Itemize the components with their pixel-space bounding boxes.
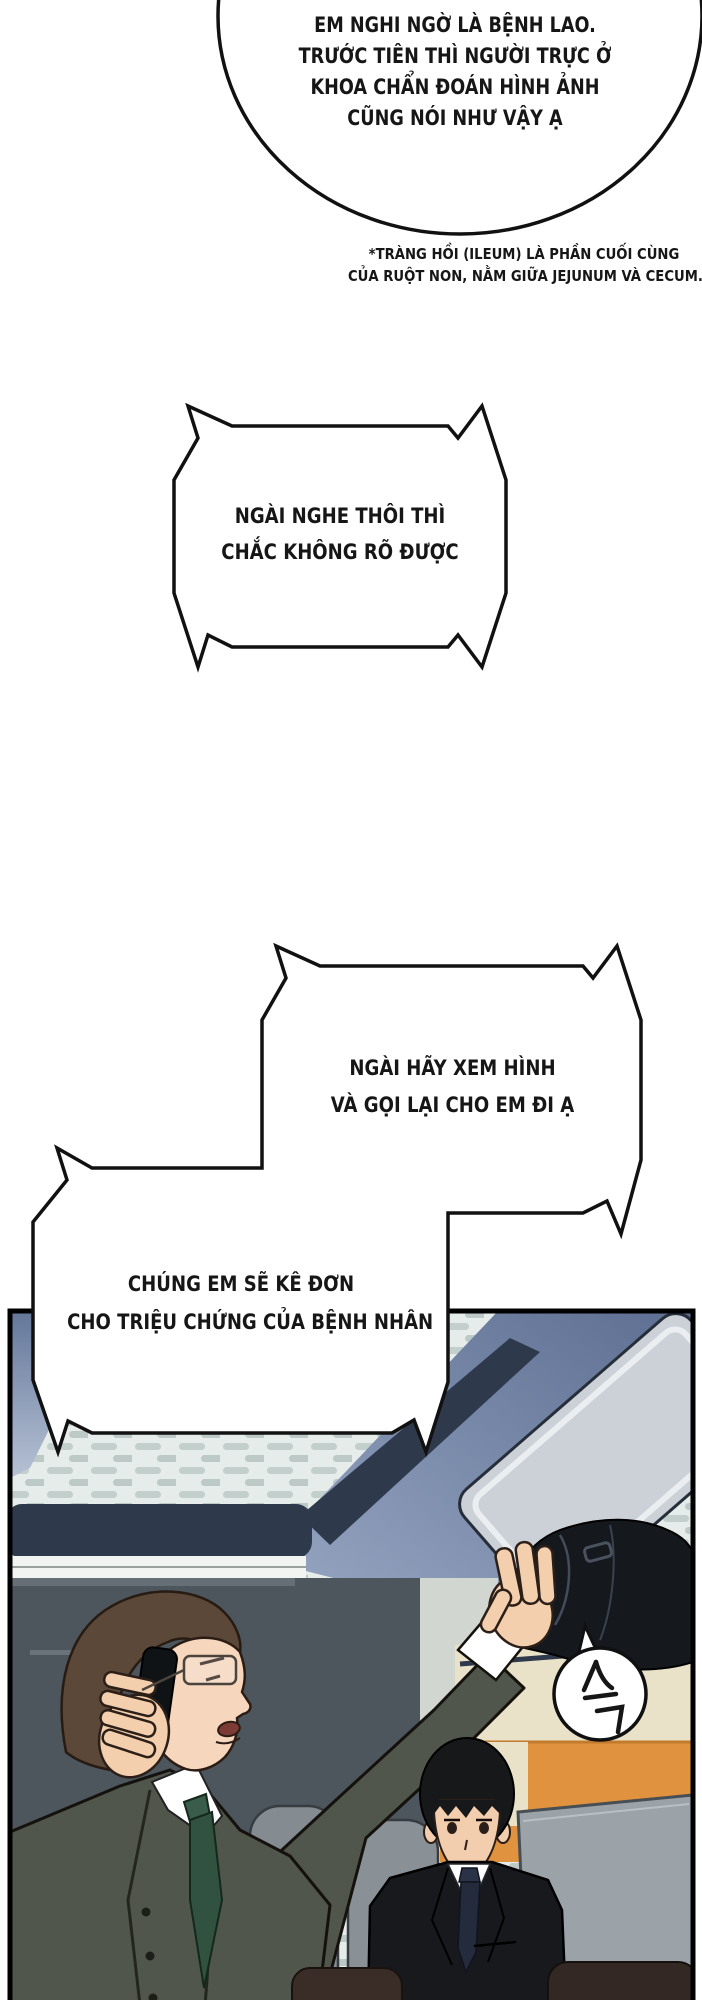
footnote-line: CỦA RUỘT NON, NẰM GIỮA JEJUNUM VÀ CECUM. — [348, 265, 700, 287]
bubble-line: CHO TRIỆU CHỨNG CỦA BỆNH NHÂN — [67, 1304, 415, 1342]
speech-bubble-4-text: CHÚNG EM SẼ KÊ ĐƠN CHO TRIỆU CHỨNG CỦA B… — [67, 1266, 415, 1342]
bubble-line: EM NGHI NGỜ LÀ BỆNH LAO. — [279, 10, 632, 41]
bubble-line: KHOA CHẨN ĐOÁN HÌNH ẢNH — [279, 72, 632, 103]
bubble-line: CŨNG NÓI NHƯ VẬY Ạ — [279, 103, 632, 134]
seat-top — [548, 1962, 698, 2000]
bubble-line: NGÀI HÃY XEM HÌNH — [292, 1050, 612, 1087]
rack-front-bar — [6, 1504, 312, 1558]
comic-page-art — [0, 0, 702, 2000]
bubble-line: CHÚNG EM SẼ KÊ ĐƠN — [67, 1266, 415, 1304]
bubble-line: VÀ GỌI LẠI CHO EM ĐI Ạ — [292, 1087, 612, 1124]
speech-bubble-2-text: NGÀI NGHE THÔI THÌ CHẮC KHÔNG RÕ ĐƯỢC — [201, 499, 480, 571]
bubble-line: TRƯỚC TIÊN THÌ NGƯỜI TRỰC Ở — [279, 41, 632, 72]
speech-bubble-3-text: NGÀI HÃY XEM HÌNH VÀ GỌI LẠI CHO EM ĐI Ạ — [292, 1050, 612, 1124]
bubble-line: NGÀI NGHE THÔI THÌ — [201, 499, 480, 535]
seat-top — [292, 1968, 402, 2000]
footnote-line: *TRÀNG HỒI (ILEUM) LÀ PHẦN CUỐI CÙNG — [348, 243, 700, 265]
speech-bubble-1-text: EM NGHI NGỜ LÀ BỆNH LAO. TRƯỚC TIÊN THÌ … — [279, 10, 632, 134]
bubble-line: CHẮC KHÔNG RÕ ĐƯỢC — [201, 535, 480, 571]
translator-footnote: *TRÀNG HỒI (ILEUM) LÀ PHẦN CUỐI CÙNG CỦA… — [348, 243, 700, 287]
